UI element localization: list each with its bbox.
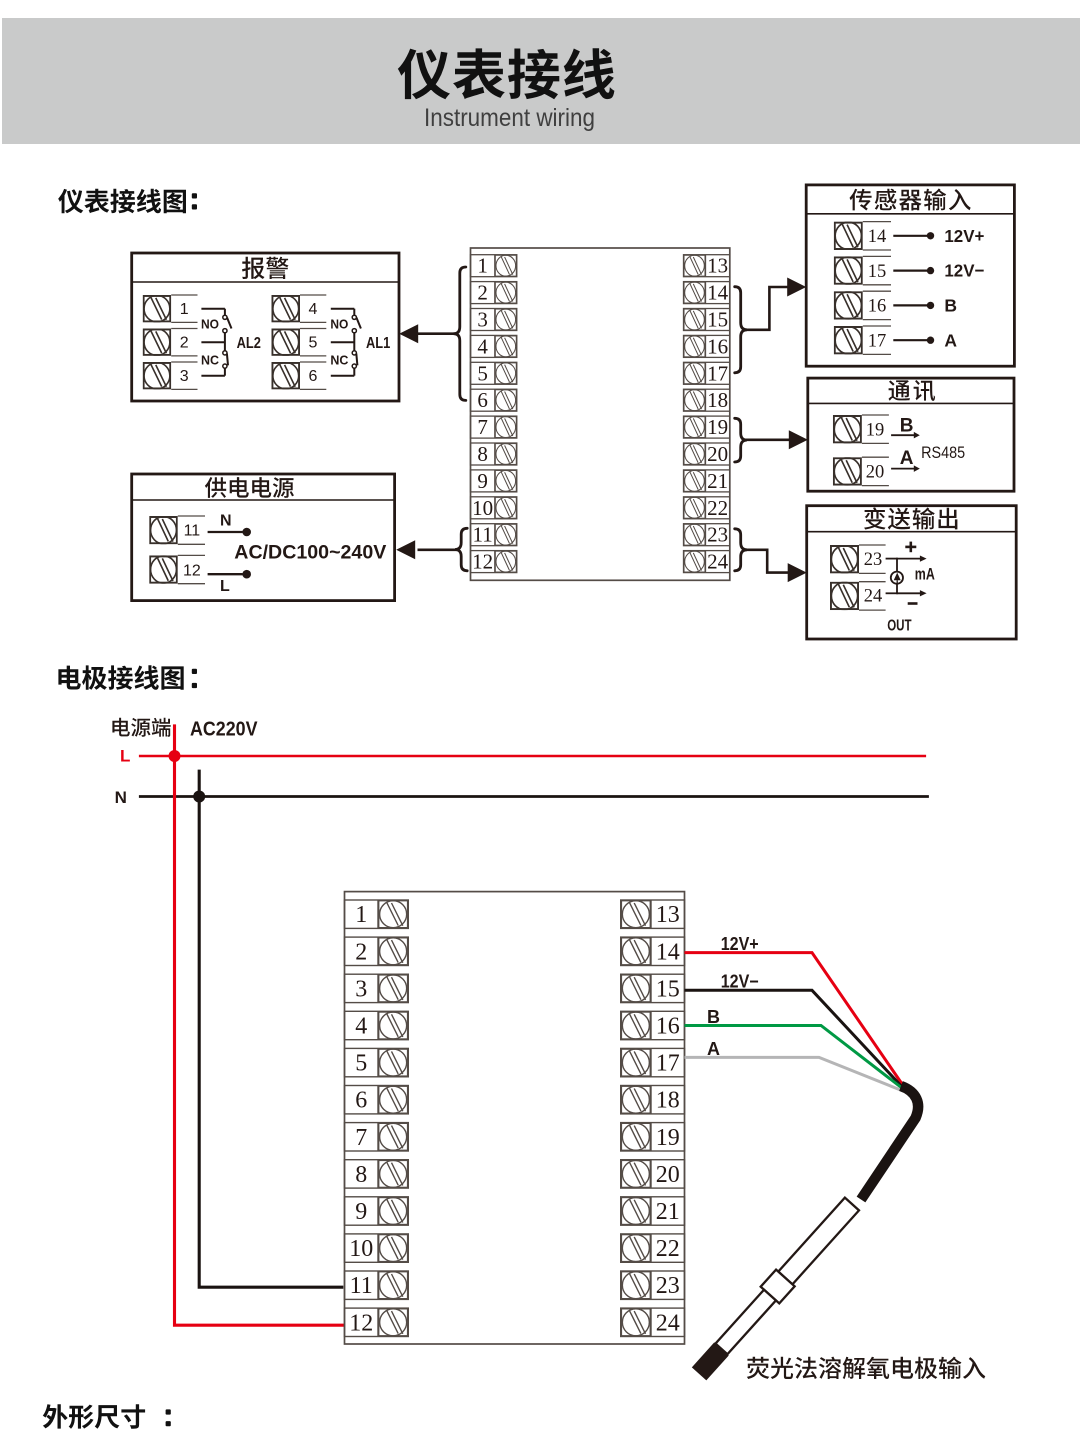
svg-text:12V+: 12V+ [944, 226, 984, 246]
svg-text:14: 14 [868, 227, 887, 247]
svg-text:1: 1 [477, 254, 488, 278]
svg-text:12: 12 [183, 562, 201, 579]
svg-text:23: 23 [707, 523, 728, 547]
svg-text:22: 22 [707, 496, 728, 520]
svg-text:16: 16 [707, 334, 728, 358]
svg-text:3: 3 [477, 308, 488, 332]
svg-text:2: 2 [477, 281, 488, 305]
svg-text:11: 11 [184, 523, 201, 540]
svg-text:12V−: 12V− [721, 972, 759, 992]
svg-text:B: B [900, 416, 914, 437]
svg-text:B: B [707, 1007, 720, 1027]
svg-text:14: 14 [656, 939, 680, 965]
svg-text:7: 7 [477, 415, 488, 439]
svg-text:N: N [115, 788, 127, 807]
svg-text:9: 9 [355, 1199, 367, 1225]
svg-text:AL1: AL1 [366, 335, 391, 352]
svg-text:4: 4 [355, 1014, 367, 1040]
svg-text:11: 11 [472, 523, 492, 547]
svg-text:15: 15 [656, 976, 680, 1002]
svg-text:A: A [944, 330, 957, 350]
svg-text:10: 10 [349, 1236, 373, 1262]
svg-text:4: 4 [309, 301, 318, 318]
svg-text:12V−: 12V− [944, 261, 984, 281]
svg-text:8: 8 [355, 1162, 367, 1188]
svg-text:RS485: RS485 [921, 444, 965, 462]
svg-text:9: 9 [477, 469, 488, 493]
svg-text:24: 24 [707, 550, 729, 574]
svg-text:14: 14 [707, 281, 729, 305]
svg-text:N: N [220, 512, 232, 529]
svg-text:16: 16 [656, 1014, 680, 1040]
svg-text:1: 1 [355, 902, 367, 928]
svg-text:20: 20 [656, 1162, 680, 1188]
svg-text:19: 19 [866, 420, 885, 440]
svg-text:3: 3 [180, 368, 189, 385]
svg-text:23: 23 [656, 1273, 680, 1299]
svg-text:24: 24 [864, 587, 883, 607]
svg-text:12: 12 [472, 550, 493, 574]
svg-text:B: B [944, 296, 957, 316]
svg-text:5: 5 [355, 1051, 367, 1077]
svg-text:16: 16 [868, 297, 887, 317]
svg-text:15: 15 [868, 262, 887, 282]
svg-text:22: 22 [656, 1236, 680, 1262]
svg-text:18: 18 [656, 1088, 680, 1114]
svg-text:OUT: OUT [887, 618, 912, 635]
svg-text:NO: NO [201, 317, 219, 332]
svg-text:6: 6 [355, 1088, 367, 1114]
svg-text:1: 1 [180, 301, 189, 318]
svg-text:5: 5 [477, 361, 488, 385]
svg-text:6: 6 [309, 368, 318, 385]
svg-text:7: 7 [355, 1125, 367, 1151]
svg-text:15: 15 [707, 308, 728, 332]
svg-text:L: L [220, 578, 230, 595]
svg-text:13: 13 [656, 902, 680, 928]
svg-text:10: 10 [472, 496, 493, 520]
svg-text:AC/DC100~240V: AC/DC100~240V [234, 542, 386, 564]
svg-text:20: 20 [866, 463, 885, 483]
svg-text:L: L [120, 747, 130, 766]
svg-text:20: 20 [707, 442, 728, 466]
svg-text:A: A [707, 1039, 720, 1059]
svg-text:12V+: 12V+ [721, 934, 759, 954]
svg-text:21: 21 [707, 469, 728, 493]
svg-text:17: 17 [707, 361, 728, 385]
svg-text:2: 2 [355, 939, 367, 965]
svg-text:AL2: AL2 [237, 335, 261, 352]
svg-text:mA: mA [915, 565, 935, 583]
svg-text:NC: NC [330, 353, 349, 368]
svg-text:Instrument wiring: Instrument wiring [424, 104, 595, 132]
svg-text:11: 11 [350, 1273, 373, 1299]
svg-text:21: 21 [656, 1199, 680, 1225]
svg-text:NO: NO [330, 317, 348, 332]
svg-text:A: A [900, 448, 914, 469]
svg-text:17: 17 [868, 331, 887, 351]
svg-text:NC: NC [201, 353, 220, 368]
svg-text:23: 23 [864, 550, 883, 570]
svg-text:5: 5 [309, 335, 318, 352]
svg-text:AC220V: AC220V [190, 719, 258, 741]
svg-text:2: 2 [180, 335, 189, 352]
svg-text:19: 19 [656, 1125, 680, 1151]
svg-text:6: 6 [477, 388, 488, 412]
svg-text:12: 12 [349, 1310, 373, 1336]
svg-text:24: 24 [656, 1310, 680, 1336]
svg-text:8: 8 [477, 442, 488, 466]
svg-text:3: 3 [355, 976, 367, 1002]
svg-text:13: 13 [707, 254, 728, 278]
svg-text:4: 4 [477, 334, 488, 358]
svg-text:18: 18 [707, 388, 728, 412]
svg-text:19: 19 [707, 415, 728, 439]
svg-text:17: 17 [656, 1051, 680, 1077]
